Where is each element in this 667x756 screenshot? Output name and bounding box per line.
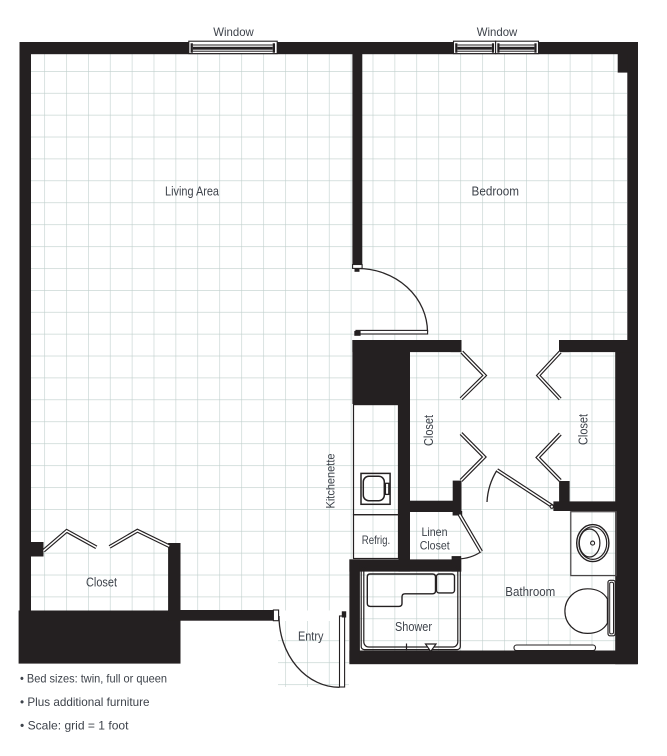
svg-text:Window: Window	[213, 25, 254, 39]
svg-text:• Scale: grid = 1 foot: • Scale: grid = 1 foot	[20, 718, 129, 732]
svg-text:• Plus additional furniture: • Plus additional furniture	[20, 695, 150, 709]
svg-text:Closet: Closet	[420, 539, 451, 553]
svg-text:Shower: Shower	[395, 620, 432, 634]
svg-text:• Bed sizes: twin, full or que: • Bed sizes: twin, full or queen	[20, 671, 167, 685]
svg-text:Bedroom: Bedroom	[472, 184, 520, 198]
svg-text:Living Area: Living Area	[165, 184, 219, 198]
svg-text:Entry: Entry	[298, 629, 324, 643]
svg-text:Closet: Closet	[577, 414, 591, 445]
svg-text:Kitchenette: Kitchenette	[324, 453, 338, 508]
svg-text:Refrig.: Refrig.	[362, 533, 391, 547]
svg-text:Window: Window	[477, 25, 518, 39]
svg-text:Closet: Closet	[422, 415, 436, 446]
svg-text:Bathroom: Bathroom	[505, 585, 555, 599]
svg-text:Closet: Closet	[86, 575, 117, 589]
svg-text:Linen: Linen	[422, 525, 448, 539]
